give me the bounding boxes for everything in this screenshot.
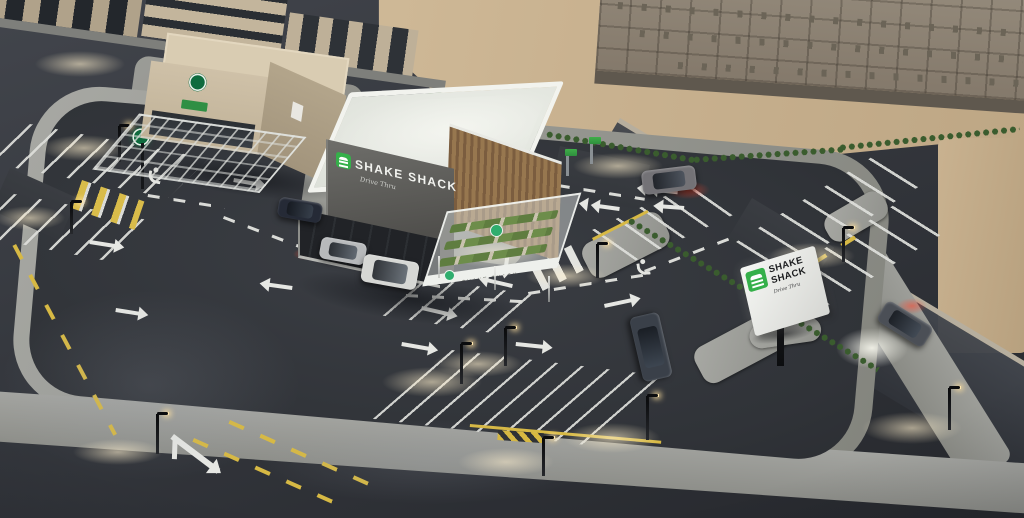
pylon-brand-text: SHAKE SHACK xyxy=(768,255,807,286)
accessible-marking xyxy=(634,258,652,276)
light-glow xyxy=(862,412,962,444)
light-pole xyxy=(646,396,649,440)
road-haze xyxy=(260,420,600,504)
canopy-post xyxy=(494,266,496,290)
light-glow xyxy=(433,351,523,377)
light-pole xyxy=(156,414,159,454)
shake-shack-pylon-sign: SHAKE SHACK Drive Thru xyxy=(744,254,830,370)
shake-shack-burger-logo-icon xyxy=(745,267,769,292)
road-haze xyxy=(0,290,300,480)
shake-shack-burger-logo-icon xyxy=(336,152,351,170)
light-pole xyxy=(948,388,951,430)
lane-arrow xyxy=(656,204,684,210)
shake-shack-building: SHAKE SHACK Drive Thru SHAKE SHACK xyxy=(298,84,568,299)
light-pole xyxy=(542,438,545,476)
canopy-sign-brand: SHAKE SHACK xyxy=(460,272,518,286)
light-pole xyxy=(460,344,463,384)
light-pole xyxy=(842,228,845,262)
wayfinding-sign xyxy=(590,138,593,164)
cafe-green-sign xyxy=(181,99,208,112)
light-pole xyxy=(70,202,73,234)
canopy-post xyxy=(548,276,550,302)
light-pole xyxy=(596,244,599,278)
cafe-round-logo-icon xyxy=(187,72,207,92)
canopy-post xyxy=(438,256,440,278)
green-disc-logo-icon xyxy=(444,270,455,281)
light-pole xyxy=(504,328,507,366)
pylon-panel: SHAKE SHACK Drive Thru xyxy=(740,245,831,336)
green-disc-logo-icon xyxy=(490,224,503,237)
light-glow xyxy=(35,51,125,77)
site-aerial-render: SHAKE SHACK Drive Thru SHAKE SHACK SHAKE xyxy=(0,0,1024,518)
